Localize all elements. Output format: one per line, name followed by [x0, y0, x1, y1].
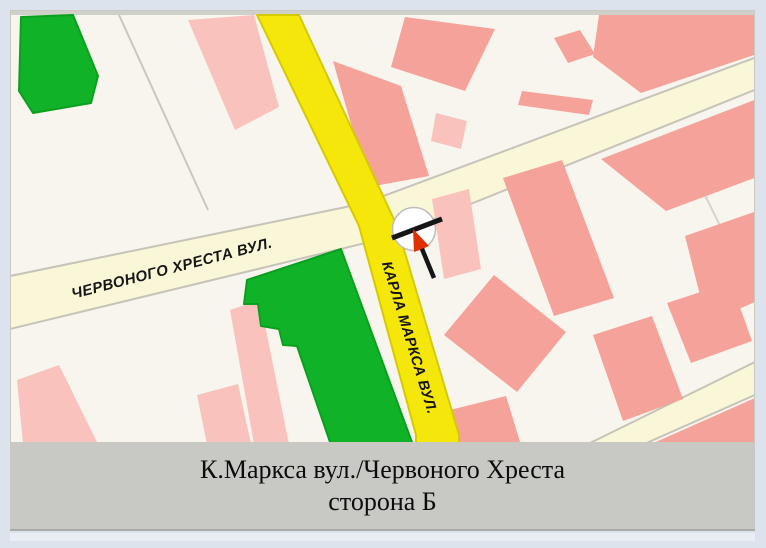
map-image: ЧЕРВОНОГО ХРЕСТА ВУЛ. КАРЛА МАРКСА ВУЛ. — [10, 10, 755, 443]
map-card: ЧЕРВОНОГО ХРЕСТА ВУЛ. КАРЛА МАРКСА ВУЛ. … — [0, 0, 766, 548]
bottom-strip — [10, 533, 755, 541]
caption-side: сторона Б — [328, 486, 436, 518]
map-top-edge — [10, 10, 755, 15]
map-canvas: ЧЕРВОНОГО ХРЕСТА ВУЛ. КАРЛА МАРКСА ВУЛ. — [10, 10, 755, 443]
caption-intersection: К.Маркса вул./Червоного Хреста — [200, 454, 565, 486]
caption-bar: К.Маркса вул./Червоного Хреста сторона Б — [10, 443, 755, 531]
